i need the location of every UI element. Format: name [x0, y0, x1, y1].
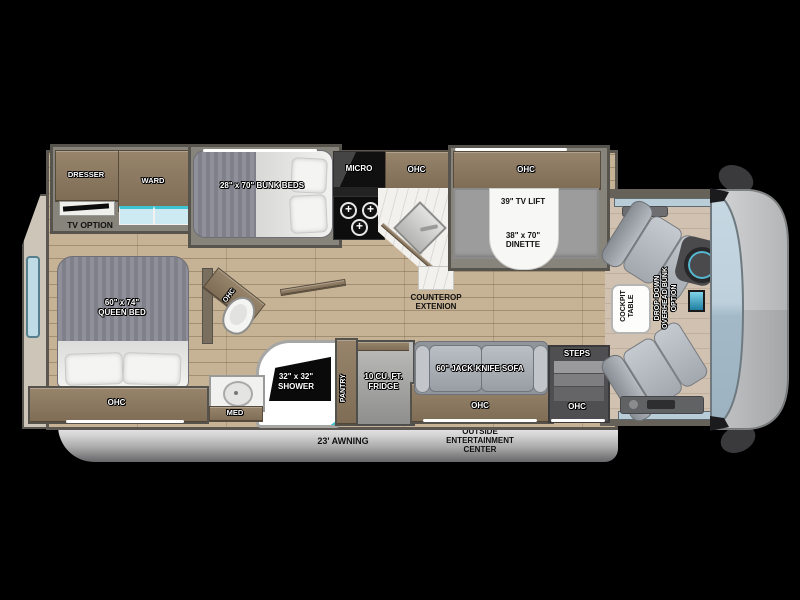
steps-ohc-label: OHC	[548, 402, 606, 412]
kitchen-ohc-label: OHC	[385, 165, 448, 175]
outside-entertainment-label: OUTSIDE ENTERTAINMENT CENTER	[440, 427, 520, 455]
queen-pillow-left	[64, 352, 123, 386]
toilet-bowl	[226, 301, 250, 328]
console-display	[647, 400, 675, 409]
fridge-label: 10 CU. FT. FRIDGE	[356, 372, 411, 391]
med-sink	[223, 381, 253, 407]
rear-window	[26, 256, 40, 338]
bunk-mattress	[193, 150, 333, 238]
dinette-label: 38" x 70" DINETTE	[489, 231, 557, 249]
bunk-slide-indicator	[203, 149, 317, 152]
counter-extension-label: COUNTEROP EXTENION	[398, 293, 474, 311]
awning-label: 23' AWNING	[300, 436, 386, 446]
sofa-ohc-label: OHC	[410, 401, 550, 411]
overhead-bunk-option-label: DROP-DOWN OVERHEAD BUNK OPTION	[654, 238, 682, 358]
front-cap	[697, 158, 792, 458]
bedroom-ohc-label: OHC	[28, 398, 205, 408]
sofa-label: 60" JACK-KNIFE SOFA	[414, 364, 546, 374]
burner-3	[351, 219, 368, 236]
tv-option-label: TV OPTION	[54, 221, 126, 231]
bunk-pillow-bottom	[289, 194, 328, 234]
med-label: MED	[209, 408, 261, 417]
fridge-top-trim	[358, 342, 409, 351]
steps-label: STEPS	[548, 349, 606, 359]
dinette-ohc-label: OHC	[453, 165, 599, 175]
step-3	[554, 387, 604, 401]
stove	[333, 196, 385, 240]
step-2	[554, 374, 604, 386]
cockpit-table-label: COCKPIT TABLE	[620, 274, 638, 338]
rv-floorplan: 23' AWNING OUTSIDE ENTERTAINMENT CENTER …	[0, 0, 800, 600]
dresser-label: DRESSER	[55, 170, 117, 179]
tv-lift-label: 39" TV LIFT	[489, 197, 557, 206]
steps-slide-indicator	[551, 419, 605, 422]
pantry-label: PANTRY	[340, 352, 348, 424]
bed-slide-indicator	[66, 420, 184, 423]
ward-drawer-right	[154, 206, 189, 225]
microwave-label: MICRO	[333, 164, 385, 174]
med-sink-drain	[234, 391, 238, 395]
console-knob	[629, 400, 638, 409]
sofa-slide-indicator	[423, 419, 537, 422]
queen-bed-label: 60" x 74" QUEEN BED	[57, 298, 187, 317]
wardrobe-label: WARD	[118, 176, 188, 185]
queen-pillow-right	[122, 352, 181, 386]
dinette-slide-indicator	[455, 148, 567, 151]
burner-1	[340, 202, 357, 219]
queen-bed	[57, 256, 189, 388]
shower-label: 32" x 32" SHOWER	[258, 372, 334, 391]
lower-console	[620, 396, 704, 414]
burner-2	[362, 202, 379, 219]
bunk-label: 28" x 70" BUNK BEDS	[193, 181, 331, 191]
